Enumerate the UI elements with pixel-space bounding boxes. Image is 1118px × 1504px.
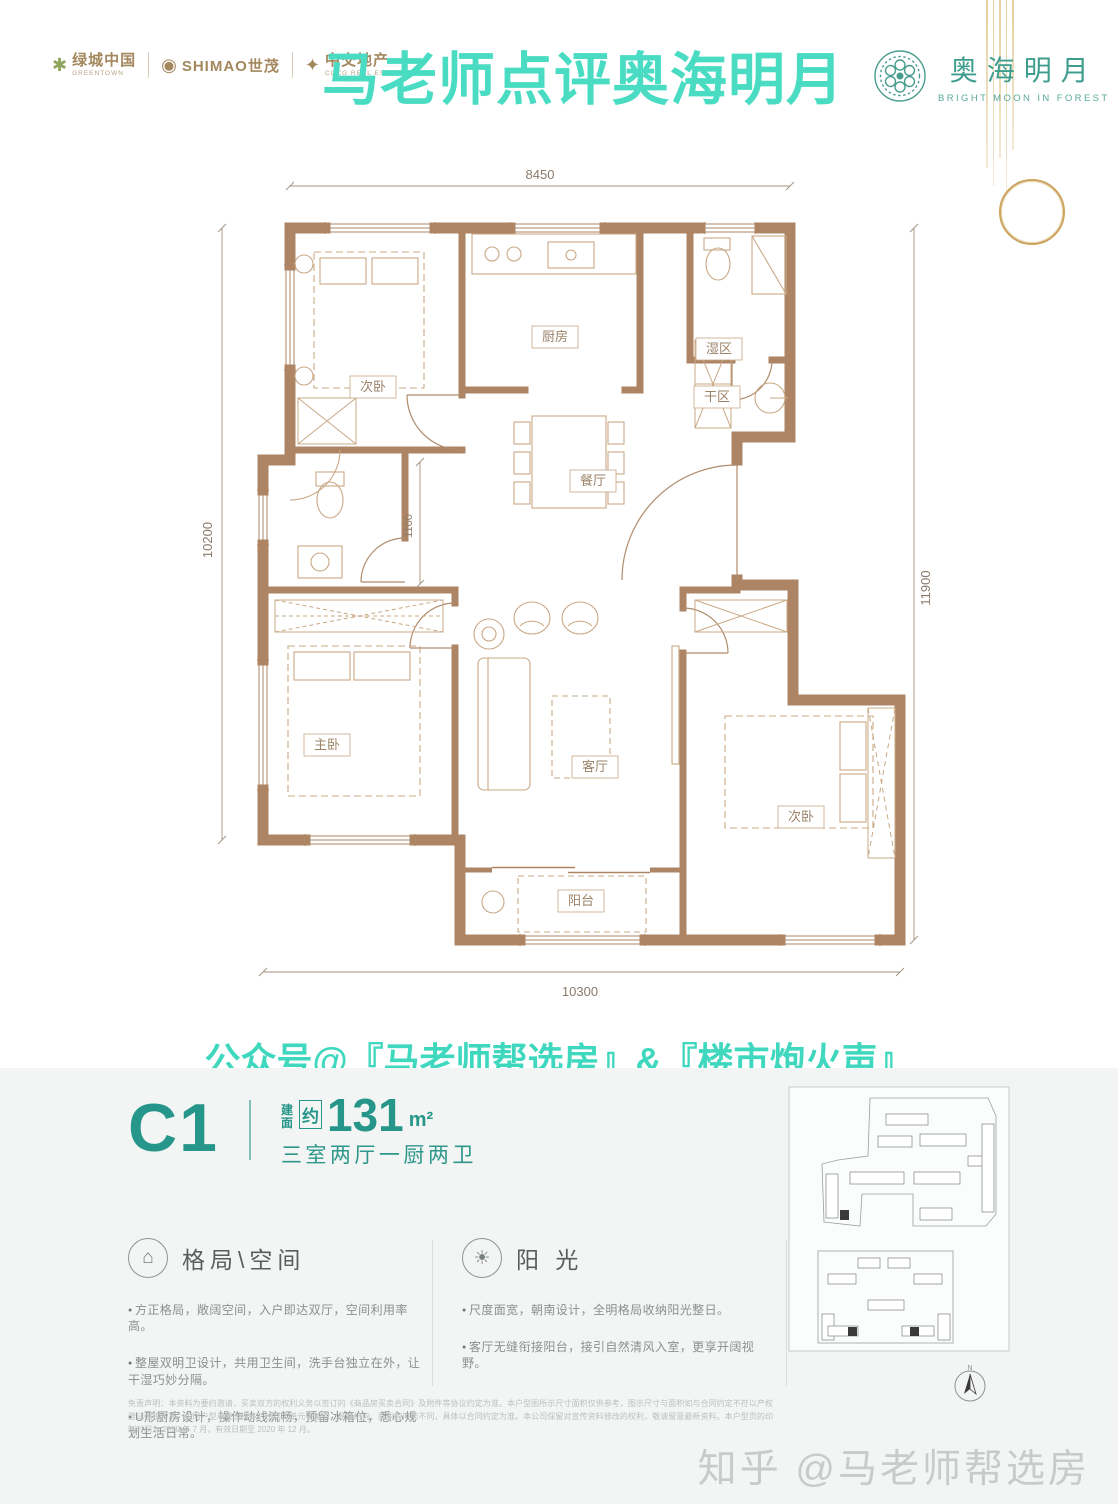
brand-emblem-icon	[872, 48, 928, 104]
compass-label: N	[967, 1365, 972, 1372]
floor-plan: 次卧 厨房 湿区 干区 餐厅 客厅 主卧 次卧 阳台 8450 10200 11…	[180, 160, 940, 1020]
feature-bullet: 客厅无缝衔接阳台，接引自然清风入室，更享开阔视野。	[462, 1339, 762, 1371]
room-label-wet-zone: 湿区	[706, 341, 732, 356]
unit-layout-desc: 三室两厅一厨两卫	[281, 1139, 477, 1169]
feature-bullet: 整屋双明卫设计，共用卫生间，洗手台独立在外，让干湿巧妙分隔。	[128, 1355, 428, 1387]
dim-top: 8450	[526, 167, 555, 182]
room-label-bedroom-top: 次卧	[360, 379, 386, 394]
unit-area-unit: m²	[409, 1109, 433, 1132]
zhihu-watermark: 知乎 @马老师帮选房	[698, 1438, 1090, 1494]
room-label-living: 客厅	[582, 759, 608, 774]
dimension-lines	[218, 182, 918, 976]
interior-walls	[263, 231, 790, 940]
dim-bottom: 10300	[562, 984, 598, 999]
logo-divider	[292, 52, 293, 78]
room-label-bedroom-right: 次卧	[788, 809, 814, 824]
unit-block: C1 建面 约 131 m² 三室两厅一厨两卫	[128, 1094, 477, 1169]
logo-divider	[148, 52, 149, 78]
room-label-kitchen: 厨房	[542, 329, 568, 344]
feature-section-sunlight: ☀ 阳 光 尺度面宽，朝南设计，全明格局收纳阳光整日。 客厅无缝衔接阳台，接引自…	[462, 1238, 762, 1393]
sun-icon: ☀	[462, 1238, 502, 1278]
greentown-logo-icon: ✱	[52, 56, 67, 74]
dimension-labels: 8450 10200 11900 10300 1100	[200, 167, 933, 999]
house-icon: ⌂	[128, 1238, 168, 1278]
unit-area-label: 建面	[281, 1104, 294, 1129]
closet-hatching	[275, 340, 895, 858]
room-label-master: 主卧	[314, 737, 340, 752]
room-label-dry-zone: 干区	[704, 389, 730, 404]
shimao-logo: ◉ SHIMAO世茂	[161, 55, 280, 76]
dim-bath: 1100	[403, 514, 415, 538]
page-title: 马老师点评奥海明月	[322, 34, 844, 116]
site-plan: N	[788, 1086, 1010, 1408]
unit-divider	[249, 1100, 251, 1160]
dim-right: 11900	[918, 570, 933, 605]
greentown-logo-sub: GREENTOWN	[72, 70, 136, 77]
column-divider	[786, 1240, 787, 1386]
brand-subtitle: BRIGHT MOON IN FOREST	[938, 93, 1110, 104]
column-divider	[432, 1240, 433, 1386]
poster: ✱ 绿城中国 GREENTOWN ◉ SHIMAO世茂 ✦ 中交地产 CCCG …	[0, 0, 1118, 1504]
greentown-logo-name: 绿城中国	[72, 53, 136, 70]
feature-title-sunlight: 阳 光	[516, 1241, 583, 1275]
disclaimer-text: 免责声明：本资料为要约邀请，买卖双方的权利义务以签订的《商品房买卖合同》及附件等…	[128, 1398, 773, 1436]
brand-block: 奥海明月 BRIGHT MOON IN FOREST	[872, 48, 1110, 104]
unit-area-value: 131	[327, 1096, 404, 1135]
dim-left: 10200	[200, 522, 215, 558]
shimao-logo-icon: ◉	[161, 56, 177, 74]
room-label-dining: 餐厅	[580, 473, 606, 488]
exterior-walls	[263, 228, 900, 940]
unit-code: C1	[128, 1094, 219, 1162]
greentown-logo: ✱ 绿城中国 GREENTOWN	[52, 53, 136, 77]
shimao-logo-name: SHIMAO世茂	[182, 55, 280, 76]
feature-bullet: 尺度面宽，朝南设计，全明格局收纳阳光整日。	[462, 1302, 762, 1318]
unit-approx-badge: 约	[299, 1100, 322, 1129]
feature-bullet: 方正格局，敞阔空间，入户即达双厅，空间利用率高。	[128, 1302, 428, 1334]
room-label-balcony: 阳台	[568, 893, 594, 908]
balcony-divider	[460, 868, 683, 873]
feature-title-layout: 格局\空间	[182, 1241, 305, 1275]
compass-icon: N	[955, 1365, 985, 1401]
brand-name: 奥海明月	[950, 49, 1098, 89]
cccg-logo-icon: ✦	[305, 56, 320, 74]
moon-ring-decoration	[999, 179, 1065, 245]
room-labels: 次卧 厨房 湿区 干区 餐厅 客厅 主卧 次卧 阳台	[304, 326, 824, 912]
